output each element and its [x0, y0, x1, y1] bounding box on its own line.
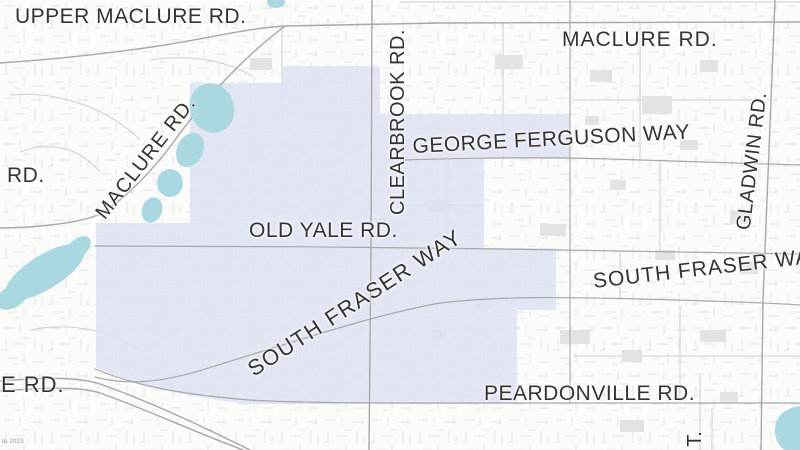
map-attribution: to 2023 [2, 438, 24, 445]
label-rd-left-edge: RD. [7, 165, 45, 186]
label-peardonville-rd: PEARDONVILLE RD. [484, 383, 695, 404]
label-upper-maclure-rd: UPPER MACLURE RD. [15, 6, 246, 27]
label-maclure-rd-top: MACLURE RD. [562, 29, 718, 50]
label-old-yale-rd: OLD YALE RD. [249, 220, 398, 241]
map-viewport[interactable]: UPPER MACLURE RD. MACLURE RD. RD. MACLUR… [0, 0, 800, 450]
label-e-rd-left-edge: E RD. [1, 374, 65, 396]
label-clearbrook-rd: CLEARBROOK RD. [388, 29, 408, 215]
label-street-partial-t: T. [685, 431, 705, 447]
